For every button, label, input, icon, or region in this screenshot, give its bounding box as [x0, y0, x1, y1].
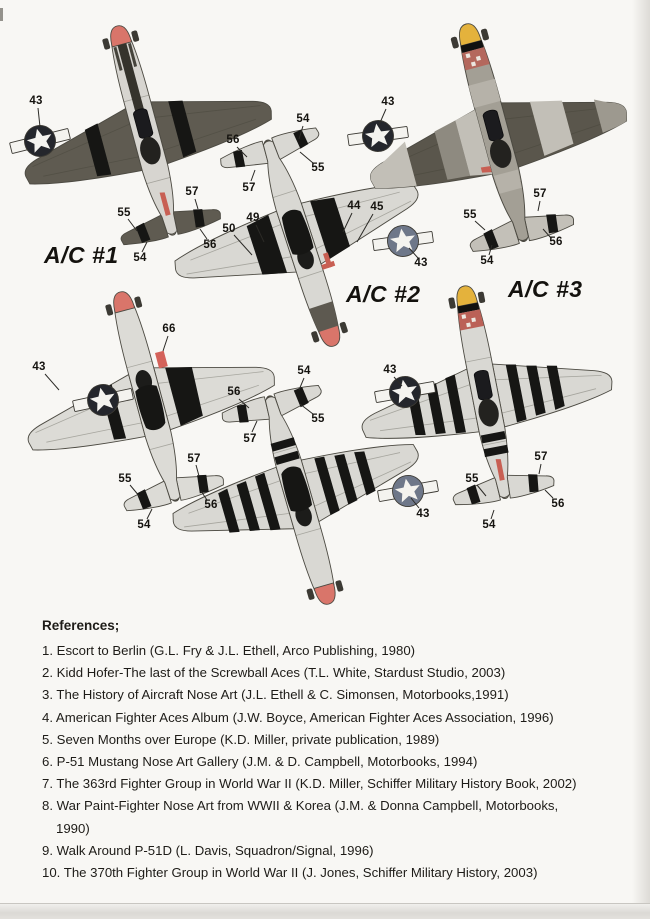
references-title: References;: [42, 618, 622, 633]
callout-number: 54: [133, 252, 146, 264]
callout-number: 55: [463, 209, 476, 221]
callout-number: 56: [203, 239, 216, 251]
scan-edge-mark: [0, 8, 3, 21]
callout-number: 55: [117, 207, 130, 219]
callout-number: 43: [416, 508, 429, 520]
callout-number: 56: [551, 498, 564, 510]
callout-number: 57: [533, 188, 546, 200]
callout-number: 43: [32, 361, 45, 373]
callout-number: 54: [137, 519, 150, 531]
callout-number: 54: [297, 365, 310, 377]
reference-item: 8. War Paint-Fighter Nose Art from WWII …: [42, 795, 576, 839]
callout-number: 50: [222, 223, 235, 235]
star-insignia-2: [371, 221, 435, 260]
callout-number: 55: [465, 473, 478, 485]
callout-number: 55: [311, 162, 324, 174]
scan-edge-bottom: [0, 903, 650, 919]
scan-edge-right: [632, 0, 650, 919]
references-section: References; 1. Escort to Berlin (G.L. Fr…: [42, 618, 622, 884]
callout-number: 43: [383, 364, 396, 376]
callout-number: 49: [246, 212, 259, 224]
reference-item: 7. The 363rd Fighter Group in World War …: [42, 773, 622, 795]
aircraft-3-label: A/C #3: [508, 276, 583, 303]
callout-number: 55: [118, 473, 131, 485]
callout-number: 44: [347, 200, 360, 212]
callout-number: 57: [187, 453, 200, 465]
callout-number: 57: [534, 451, 547, 463]
reference-item: 1. Escort to Berlin (G.L. Fry & J.L. Eth…: [42, 640, 622, 662]
reference-item: 10. The 370th Fighter Group in World War…: [42, 862, 622, 884]
callout-number: 54: [480, 255, 493, 267]
reference-item: 9. Walk Around P-51D (L. Davis, Squadron…: [42, 840, 622, 862]
reference-item: 3. The History of Aircraft Nose Art (J.L…: [42, 684, 622, 706]
callout-number: 57: [243, 433, 256, 445]
callout-number: 57: [242, 182, 255, 194]
callout-number: 56: [204, 499, 217, 511]
aircraft-2-label: A/C #2: [346, 281, 421, 308]
reference-item: 5. Seven Months over Europe (K.D. Miller…: [42, 729, 622, 751]
callout-number: 43: [381, 96, 394, 108]
callout-number: 54: [296, 113, 309, 125]
callout-number: 55: [311, 413, 324, 425]
scanned-page: 43 55 54 57 56 56 54 55 57 50 49 44 45 4…: [0, 0, 650, 919]
callout-number: 45: [370, 201, 383, 213]
reference-item: 6. P-51 Mustang Nose Art Gallery (J.M. &…: [42, 751, 622, 773]
reference-item: 2. Kidd Hofer-The last of the Screwball …: [42, 662, 622, 684]
callout-number: 56: [549, 236, 562, 248]
callout-number: 57: [185, 186, 198, 198]
aircraft-1-label: A/C #1: [44, 242, 119, 269]
callout-number: 56: [226, 134, 239, 146]
reference-item: 4. American Fighter Aces Album (J.W. Boy…: [42, 707, 622, 729]
callout-number: 66: [162, 323, 175, 335]
callout-number: 54: [482, 519, 495, 531]
callout-number: 43: [414, 257, 427, 269]
callout-number: 43: [29, 95, 42, 107]
callout-number: 56: [227, 386, 240, 398]
